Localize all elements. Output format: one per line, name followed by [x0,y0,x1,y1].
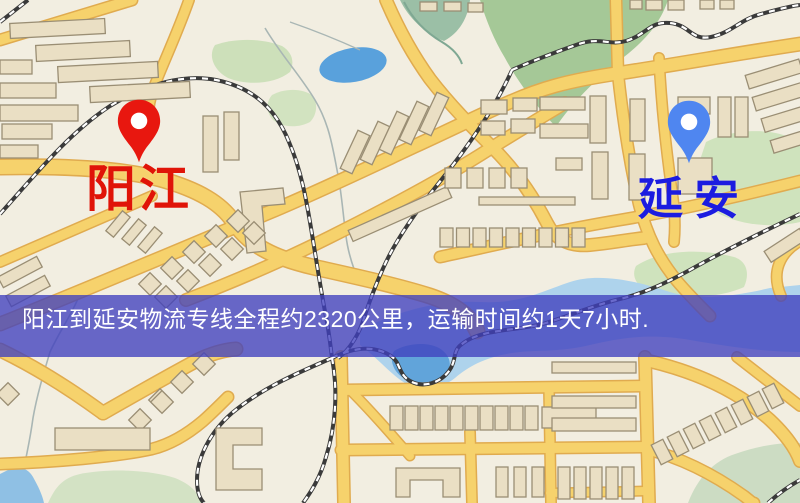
origin-city-label: 阳江 [86,164,192,214]
destination-pin-icon[interactable] [666,98,712,166]
destination-city-label: 延安 [638,176,750,221]
map-canvas[interactable] [0,0,800,503]
route-info-banner: 阳江到延安物流专线全程约2320公里，运输时间约1天7小时. [0,295,800,357]
route-info-text: 阳江到延安物流专线全程约2320公里，运输时间约1天7小时. [22,306,649,332]
origin-pin-icon[interactable] [116,97,162,165]
map-screenshot: 阳江到延安物流专线全程约2320公里，运输时间约1天7小时. 阳江 延安 [0,0,800,503]
